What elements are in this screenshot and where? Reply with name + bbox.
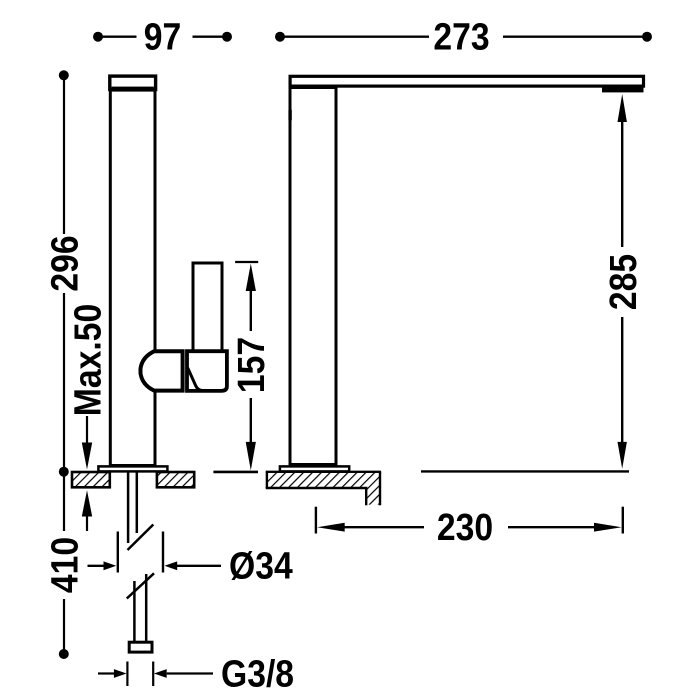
- svg-text:G3/8: G3/8: [221, 651, 294, 695]
- svg-text:230: 230: [437, 505, 493, 549]
- svg-text:157: 157: [229, 337, 273, 393]
- svg-text:Max.50: Max.50: [65, 304, 109, 416]
- svg-text:97: 97: [144, 14, 181, 58]
- svg-text:296: 296: [42, 235, 86, 291]
- svg-text:410: 410: [42, 537, 86, 593]
- svg-text:Ø34: Ø34: [229, 543, 293, 587]
- svg-text:273: 273: [433, 14, 489, 58]
- svg-text:285: 285: [601, 254, 645, 310]
